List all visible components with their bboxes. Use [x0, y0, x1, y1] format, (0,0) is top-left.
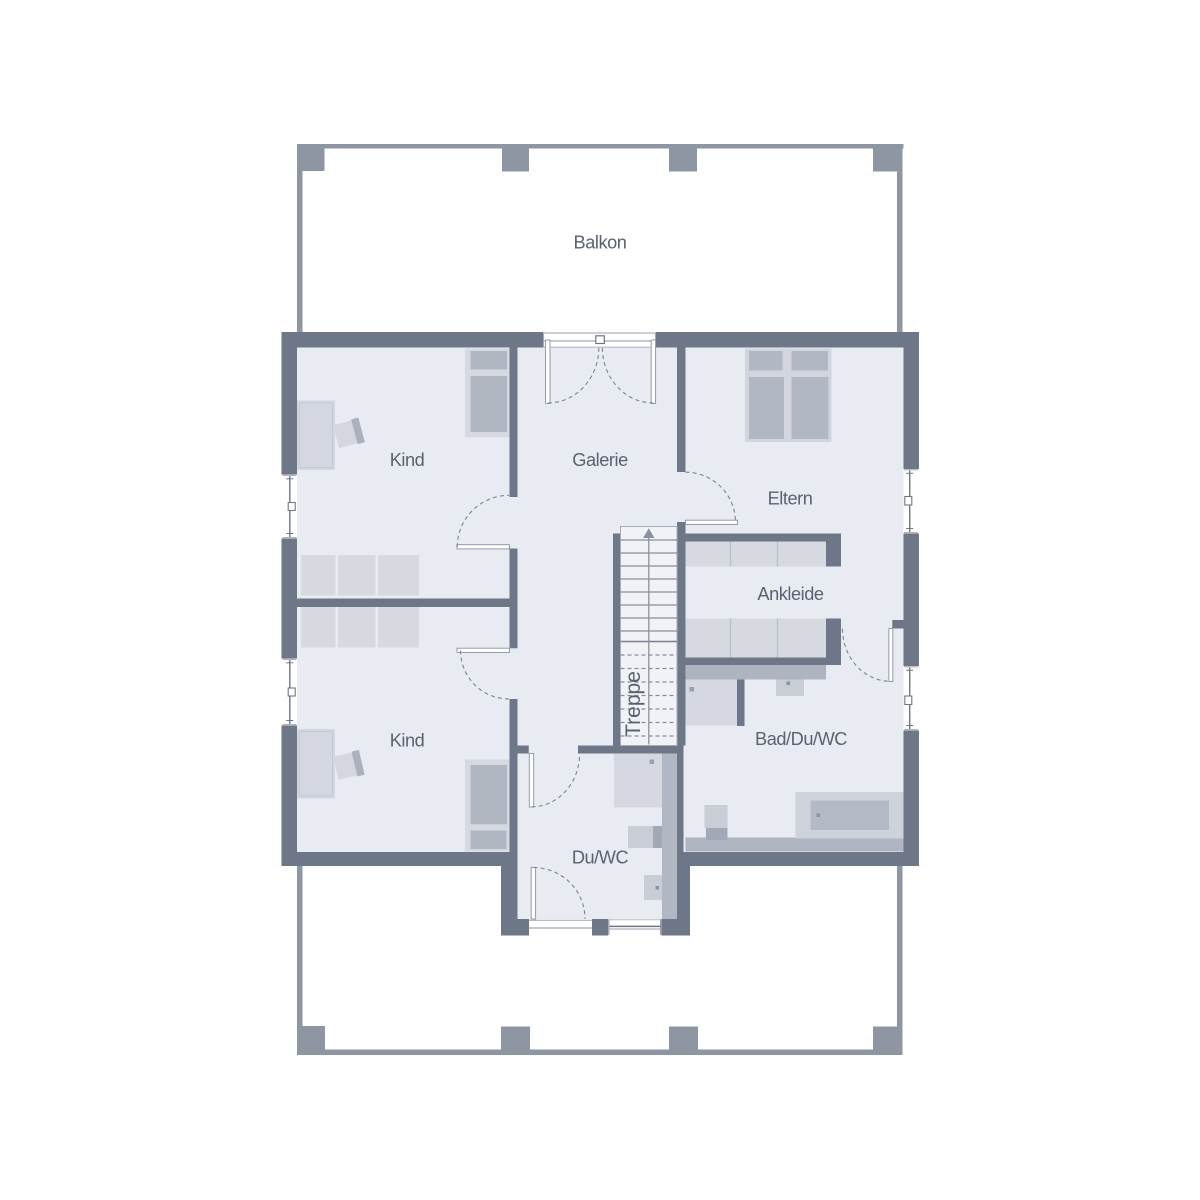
svg-text:Galerie: Galerie: [572, 450, 628, 470]
svg-text:Treppe: Treppe: [622, 671, 645, 737]
svg-text:Eltern: Eltern: [768, 489, 813, 509]
svg-text:Du/WC: Du/WC: [572, 848, 629, 868]
svg-text:Bad/Du/WC: Bad/Du/WC: [755, 729, 847, 749]
svg-text:Ankleide: Ankleide: [757, 584, 824, 604]
svg-text:Balkon: Balkon: [574, 233, 627, 253]
svg-text:Kind: Kind: [390, 731, 425, 751]
svg-text:Kind: Kind: [390, 450, 425, 470]
